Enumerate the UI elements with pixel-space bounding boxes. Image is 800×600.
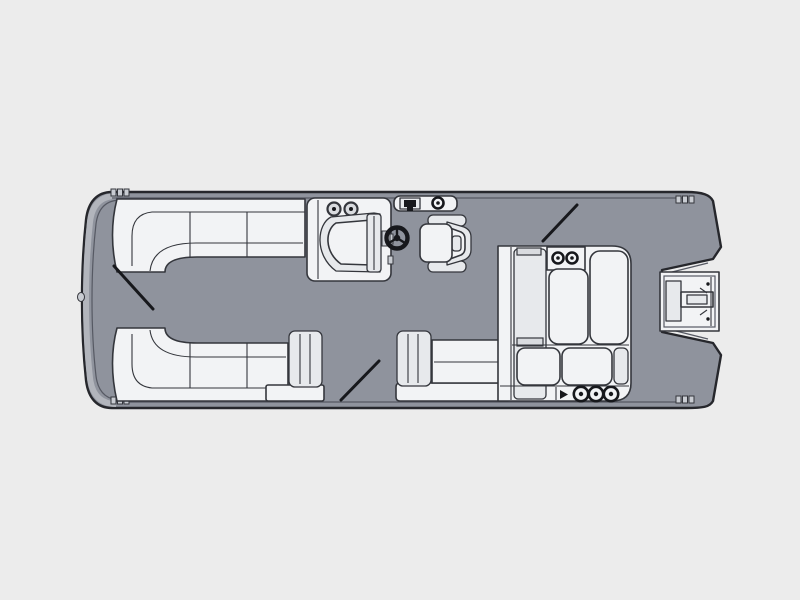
console-knob: [388, 256, 393, 264]
cleat-slot: [689, 196, 694, 203]
cleat-slot: [118, 189, 123, 196]
cleat-slot: [683, 396, 688, 403]
cleat-slot: [676, 196, 681, 203]
midship-bench: [396, 331, 508, 401]
stern-seat-side-panel: [614, 348, 628, 384]
pod-left-plate: [666, 281, 681, 321]
bench-armrest: [289, 331, 322, 387]
cleat-top-right: [676, 196, 694, 203]
cupholder-center: [579, 392, 583, 396]
helm-windshield-inner: [328, 220, 372, 265]
cupholder-center: [556, 256, 560, 260]
cleat-top-left: [111, 189, 129, 196]
stern-seat-cushion: [549, 269, 588, 344]
pod-bolt: [706, 317, 709, 320]
bench-armrest: [397, 331, 431, 386]
pontoon-floorplan-drawing: [0, 0, 800, 600]
cupholder-center: [570, 256, 574, 260]
cleat-slot: [676, 396, 681, 403]
stern-seat-cushion: [517, 348, 560, 385]
pod-bolt: [706, 282, 709, 285]
motor-mount-bar-inner: [687, 295, 707, 304]
motor-mount-pod: [660, 272, 719, 331]
chair-seat: [420, 224, 452, 262]
cleat-bottom-right: [676, 396, 694, 403]
stern-seat-cushion: [590, 251, 628, 344]
stern-seat-cushion: [562, 348, 612, 385]
cleat-slot: [124, 189, 129, 196]
floorplan-canvas: [0, 0, 800, 600]
speaker-center: [332, 207, 336, 211]
wheel-hub: [394, 235, 400, 241]
cleat-slot: [689, 396, 694, 403]
bow-navigation-light: [78, 293, 85, 302]
cleat-slot: [683, 196, 688, 203]
stern-lounge: [498, 246, 631, 401]
gate-latch-tab: [407, 207, 413, 211]
helm-console: [307, 198, 393, 281]
speaker-center: [349, 207, 353, 211]
backrest-clip: [517, 248, 541, 255]
rail-accessory-panel: [394, 196, 457, 211]
cleat-slot: [111, 189, 116, 196]
gate-latch-slider: [404, 200, 416, 207]
rail-light-center: [436, 201, 440, 205]
chair-backrest-pad: [452, 236, 461, 251]
cleat-slot: [111, 397, 116, 404]
cupholder-center: [609, 392, 613, 396]
cupholder-center: [594, 392, 598, 396]
